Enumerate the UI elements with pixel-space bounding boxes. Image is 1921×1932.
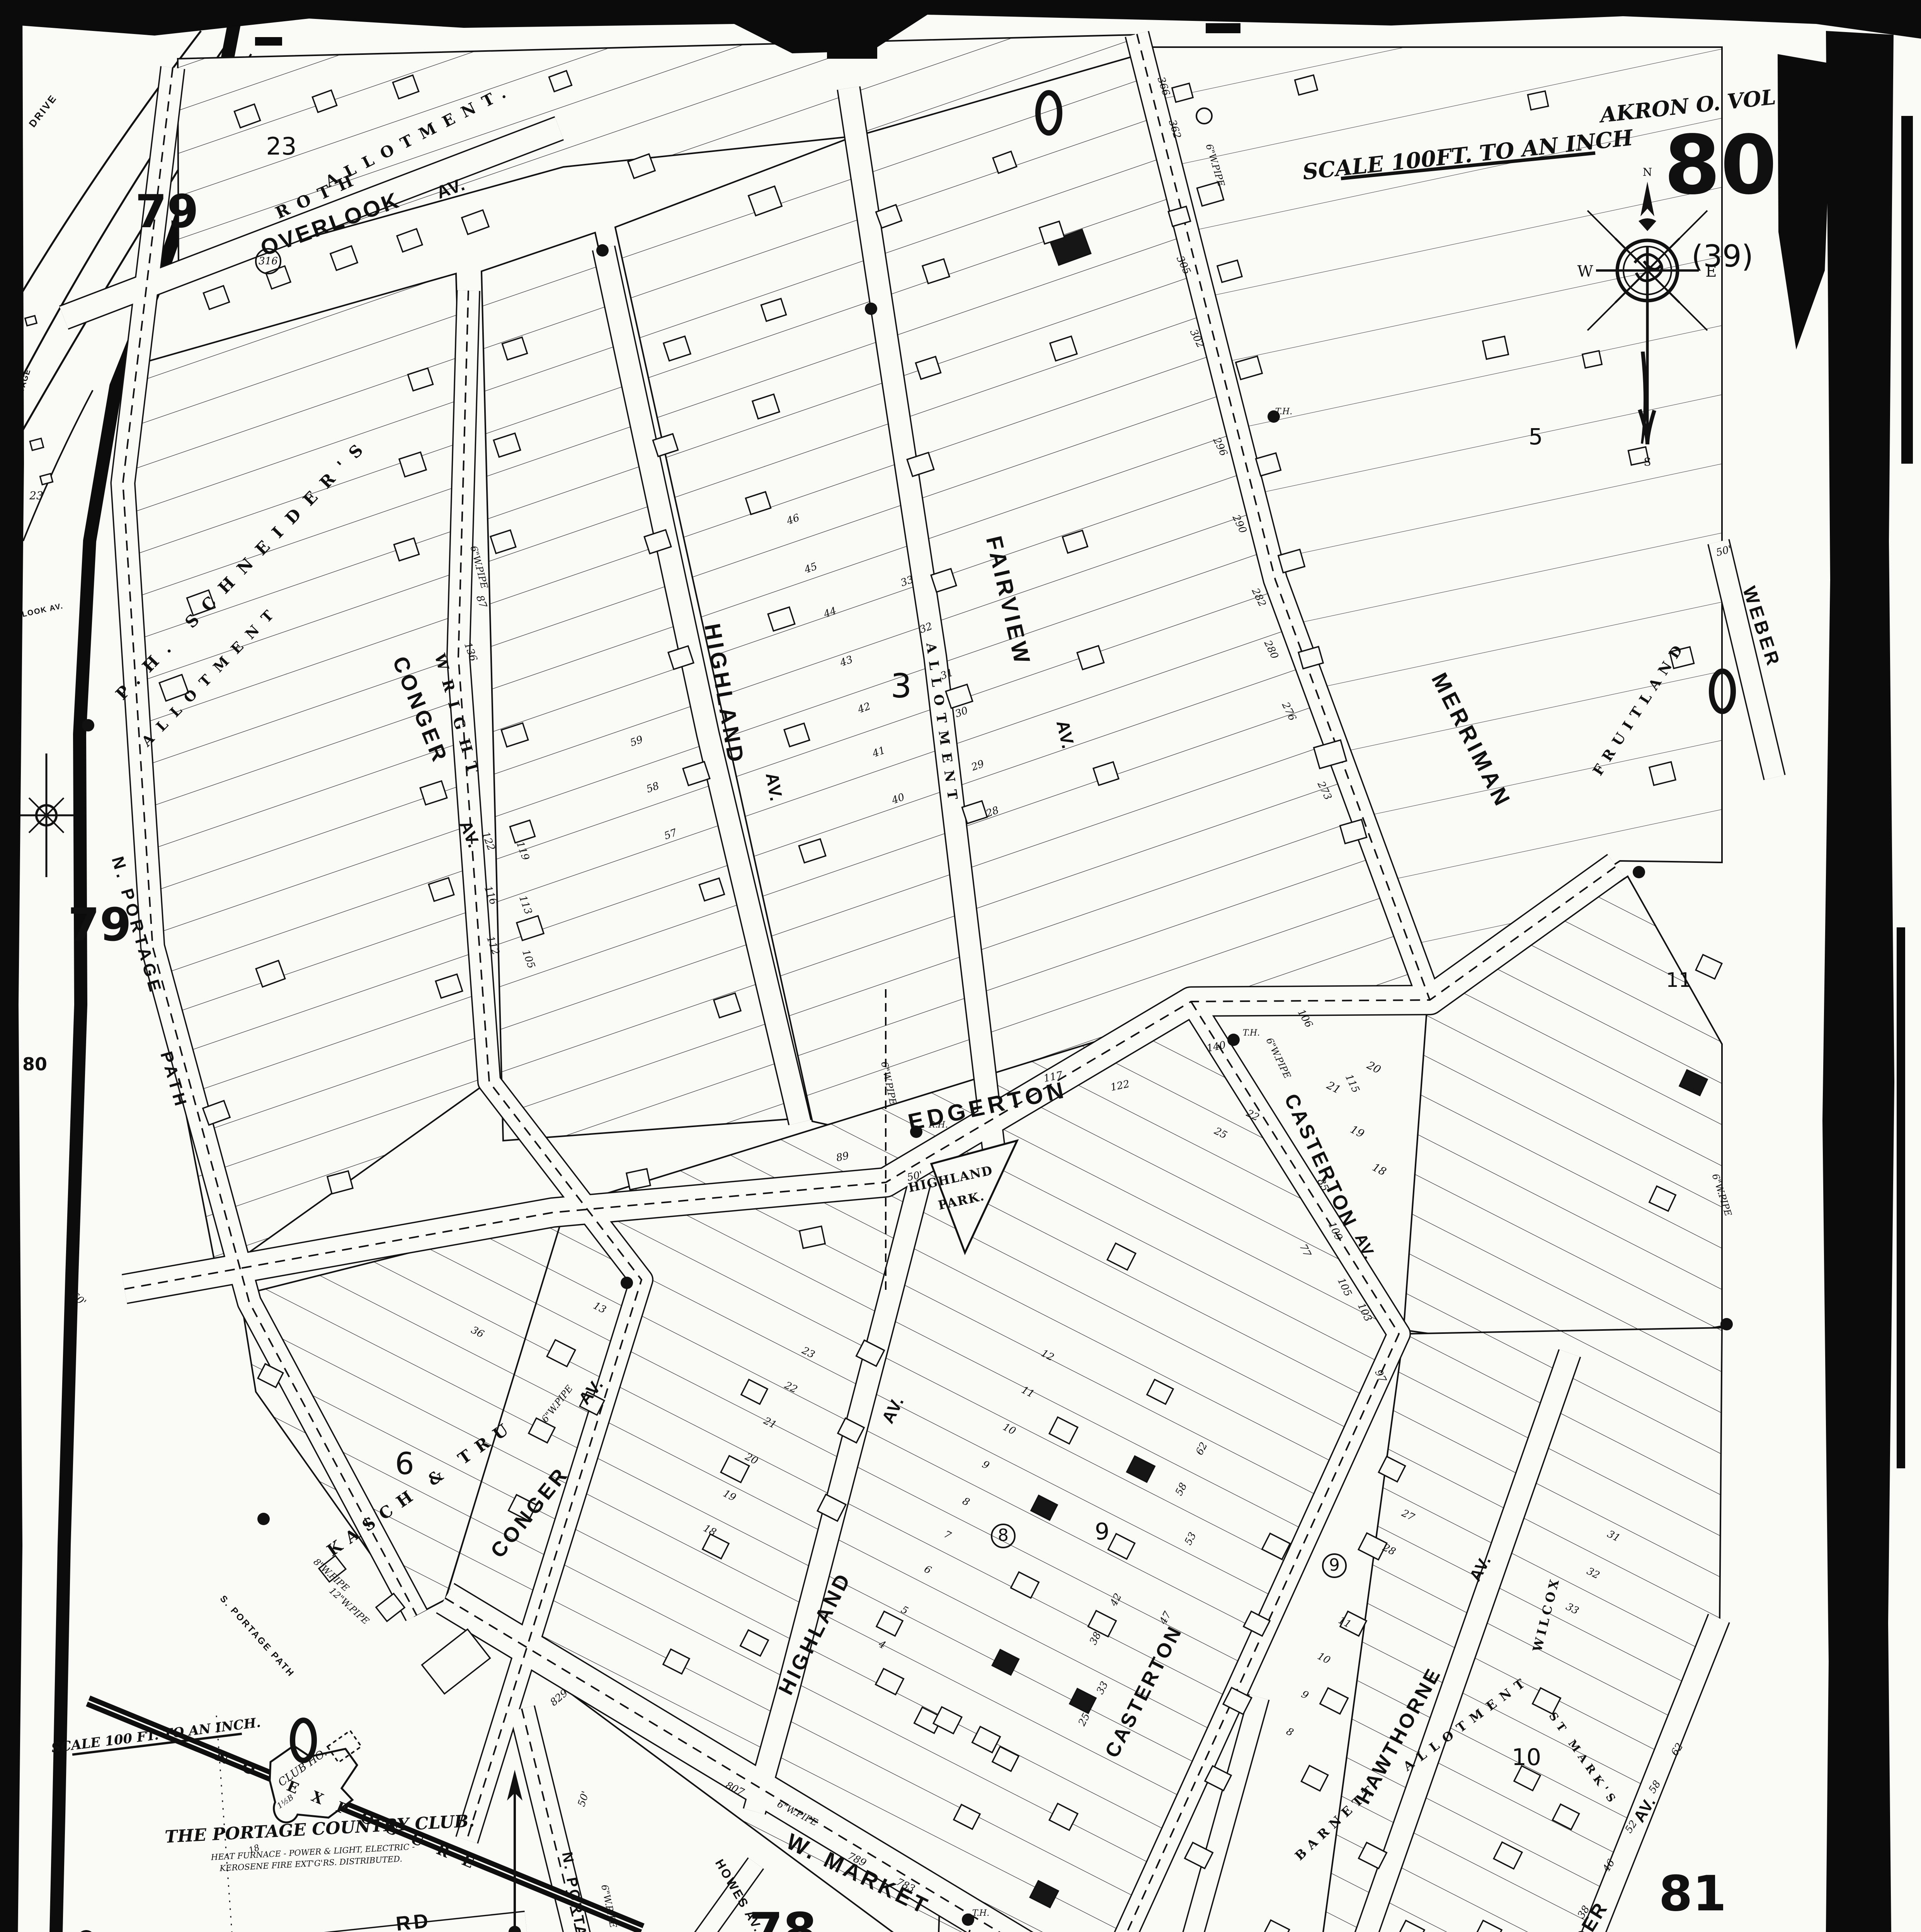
hydrant-dot [596,244,609,257]
map-label: 23 [266,132,297,160]
sheet-number-alt: (39) [1691,239,1753,274]
map-canvas: OVERLOOKAV.N. PORTAGEPATHCONGERAV.CONGER… [0,0,1921,1932]
map-label: 9 [1329,1555,1340,1575]
compass-west: W [1577,263,1593,281]
map-label: T.H. [972,1908,990,1918]
building [626,1169,650,1190]
map-label: 80 [22,1054,47,1075]
map-label: 6 [395,1447,414,1481]
map-label: 78 [749,1902,817,1932]
building [25,316,37,326]
map-label: 10 [1512,1744,1541,1771]
compass-north: N [1643,166,1652,179]
map-label: 5 [1529,423,1543,450]
compass-east: E [1705,263,1717,281]
hydrant-dot [621,1277,633,1289]
building [40,474,53,485]
map-label: 79 [68,898,131,951]
map-label: 79 [135,185,199,238]
map-label: T.H. [1275,407,1293,417]
map-label: 8 [998,1526,1009,1545]
map-label: 316 [259,255,278,267]
map-label: RD [395,1909,432,1932]
building [1483,336,1509,359]
hydrant-dot [865,303,877,315]
map-label: 9 [1095,1518,1109,1545]
map-label: 23 [29,489,43,502]
hydrant-dot [1633,866,1645,878]
hydrant-dot [257,1513,270,1525]
building [30,439,43,451]
hydrant-dot [1720,1318,1733,1330]
map-label: 3 [891,667,912,706]
map-label: 11 [1666,969,1691,992]
compass-south: S [1644,456,1651,468]
hydrant-dot [82,719,94,731]
building [800,1226,825,1248]
building [1582,351,1602,368]
sanborn-map-sheet: OVERLOOKAV.N. PORTAGEPATHCONGERAV.CONGER… [0,0,1921,1932]
building [1528,91,1548,110]
map-label: R.H. [928,1120,948,1130]
hydrant-dot [1227,1034,1240,1046]
sheet-number: 80 [1664,118,1777,213]
map-label: T.H. [1243,1028,1260,1038]
map-label: 81 [1659,1865,1726,1922]
